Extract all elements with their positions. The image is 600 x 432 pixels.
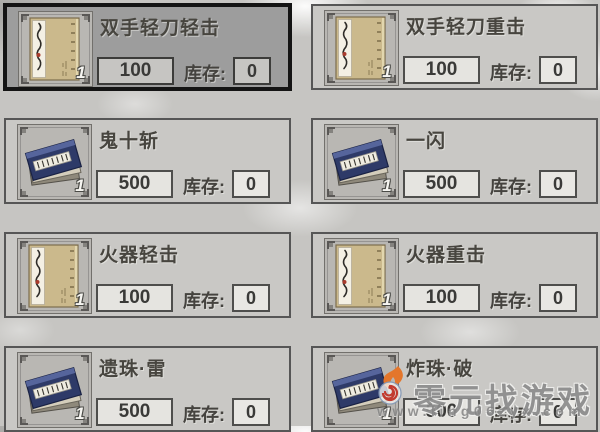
price-box: 500	[403, 170, 480, 198]
price-value: 500	[119, 173, 151, 195]
scroll-book-icon	[324, 10, 399, 86]
stock-value: 0	[553, 174, 563, 195]
stock-label: 库存:	[183, 173, 225, 199]
stock-box: 0	[539, 170, 577, 198]
stock-box: 0	[232, 398, 270, 426]
item-title: 火器重击	[406, 240, 486, 267]
item-title: 火器轻击	[99, 240, 179, 267]
price-box: 100	[403, 284, 480, 312]
item-title: 遗珠·雷	[99, 354, 166, 381]
stock-box: 0	[232, 284, 270, 312]
price-box: 500	[96, 398, 173, 426]
stock-label: 库存:	[490, 59, 532, 85]
price-value: 500	[426, 173, 458, 195]
stock-box: 0	[539, 284, 577, 312]
price-value: 100	[426, 287, 458, 309]
price-box: 100	[96, 284, 173, 312]
stock-value: 0	[246, 402, 256, 423]
price-box: 500	[96, 170, 173, 198]
item-card[interactable]: 1 鬼十斩 500 库存: 0	[4, 118, 291, 204]
price-box: 100	[403, 56, 480, 84]
price-value: 100	[119, 287, 151, 309]
item-title: 一闪	[406, 126, 446, 153]
watermark-logo-icon	[374, 365, 416, 409]
item-card[interactable]: 1 火器轻击 100 库存: 0	[4, 232, 291, 318]
item-card[interactable]: 1 双手轻刀重击 100 库存: 0	[311, 4, 598, 90]
stock-value: 0	[246, 174, 256, 195]
price-value: 100	[120, 60, 152, 82]
stock-label: 库存:	[490, 173, 532, 199]
item-card[interactable]: 1 双手轻刀轻击 100 库存: 0	[4, 4, 291, 90]
scroll-book-icon	[324, 238, 399, 314]
stock-label: 库存:	[183, 401, 225, 427]
book-stack-icon	[17, 124, 92, 200]
item-card[interactable]: 1 火器重击 100 库存: 0	[311, 232, 598, 318]
item-title: 双手轻刀重击	[406, 12, 526, 39]
stock-label: 库存:	[184, 60, 226, 86]
scroll-book-icon	[17, 238, 92, 314]
item-card[interactable]: 1 遗珠·雷 500 库存: 0	[4, 346, 291, 432]
price-value: 500	[119, 401, 151, 423]
scroll-book-icon	[18, 11, 93, 87]
stock-label: 库存:	[183, 287, 225, 313]
stock-value: 0	[553, 288, 563, 309]
stock-box: 0	[232, 170, 270, 198]
stock-value: 0	[247, 61, 257, 82]
item-title: 双手轻刀轻击	[100, 13, 220, 40]
stock-value: 0	[553, 60, 563, 81]
book-stack-icon	[324, 124, 399, 200]
stock-box: 0	[233, 57, 271, 85]
stock-label: 库存:	[490, 287, 532, 313]
price-value: 100	[426, 59, 458, 81]
book-stack-icon	[17, 352, 92, 428]
stock-value: 0	[246, 288, 256, 309]
item-card[interactable]: 1 一闪 500 库存: 0	[311, 118, 598, 204]
price-box: 100	[97, 57, 174, 85]
item-title: 鬼十斩	[99, 126, 159, 153]
stock-box: 0	[539, 56, 577, 84]
